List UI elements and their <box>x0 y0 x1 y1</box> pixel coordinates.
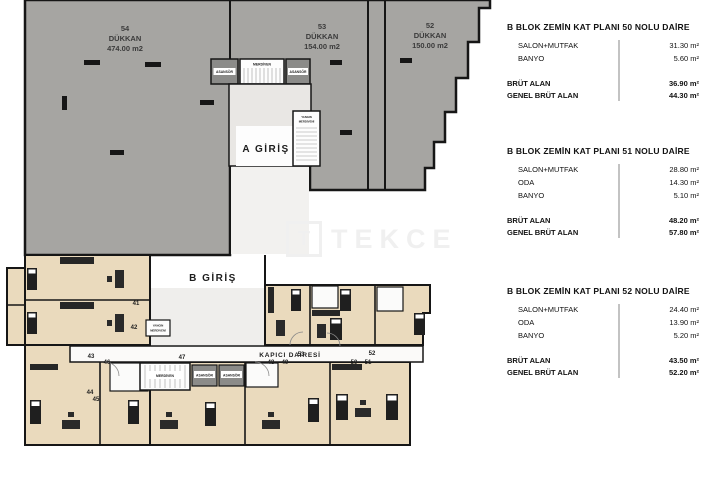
total-row: BRÜT ALAN 48.20 m² <box>507 215 699 227</box>
svg-text:A GİRİŞ: A GİRİŞ <box>242 142 289 155</box>
area-row: SALON+MUTFAK 28.80 m² <box>507 163 699 176</box>
svg-text:ASANSÖR: ASANSÖR <box>223 372 241 377</box>
svg-text:42: 42 <box>131 325 138 331</box>
svg-text:47: 47 <box>179 355 186 361</box>
block-title: B BLOK ZEMİN KAT PLANI 50 NOLU DAİRE <box>507 22 699 32</box>
area-row: ODA 13.90 m² <box>507 316 699 329</box>
svg-text:MERDİVENİ: MERDİVENİ <box>150 328 166 333</box>
svg-text:43: 43 <box>88 354 95 360</box>
svg-text:53: 53 <box>318 22 326 31</box>
kapici-label: KAPICI DAİRESİ <box>259 351 320 359</box>
total-row: BRÜT ALAN 43.50 m² <box>507 355 699 367</box>
fire-escape-top: YANGIN MERDİVENİ <box>293 111 320 166</box>
svg-text:ASANSÖR: ASANSÖR <box>196 372 214 377</box>
total-row: GENEL BRÜT ALAN 44.30 m² <box>507 90 699 102</box>
courtyard-shade <box>231 167 309 254</box>
svg-text:53: 53 <box>298 352 305 358</box>
fire-escape-hall: YANGIN MERDİVENİ <box>146 320 170 336</box>
svg-text:DÜKKAN: DÜKKAN <box>306 32 339 41</box>
floorplan-screenshot: 54 DÜKKAN 474.00 m2 53 DÜKKAN 154.00 m2 … <box>0 0 726 485</box>
svg-text:B GİRİŞ: B GİRİŞ <box>189 271 237 284</box>
elevator-top-right: ASANSÖR <box>286 59 310 84</box>
apartment-50-block: B BLOK ZEMİN KAT PLANI 50 NOLU DAİRE SAL… <box>507 22 699 102</box>
floorplan-drawing: 54 DÜKKAN 474.00 m2 53 DÜKKAN 154.00 m2 … <box>0 0 497 485</box>
stairs-bottom: MERDİVEN <box>140 363 190 390</box>
area-row: ODA 14.30 m² <box>507 176 699 189</box>
svg-text:474.00 m2: 474.00 m2 <box>107 44 143 53</box>
apartment-52-block: B BLOK ZEMİN KAT PLANI 52 NOLU DAİRE SAL… <box>507 286 699 379</box>
block-title: B BLOK ZEMİN KAT PLANI 52 NOLU DAİRE <box>507 286 699 296</box>
block-title: B BLOK ZEMİN KAT PLANI 51 NOLU DAİRE <box>507 146 699 156</box>
area-row: BANYO 5.10 m² <box>507 189 699 202</box>
svg-text:MERDİVENİ: MERDİVENİ <box>299 119 315 124</box>
apartment-51-block: B BLOK ZEMİN KAT PLANI 51 NOLU DAİRE SAL… <box>507 146 699 239</box>
svg-text:45: 45 <box>93 397 100 403</box>
svg-text:52: 52 <box>369 351 376 357</box>
area-row: SALON+MUTFAK 31.30 m² <box>507 39 699 52</box>
total-row: BRÜT ALAN 36.90 m² <box>507 78 699 90</box>
svg-text:MERDİVEN: MERDİVEN <box>156 374 174 378</box>
svg-text:41: 41 <box>133 301 140 307</box>
svg-text:48: 48 <box>268 360 275 366</box>
svg-text:51: 51 <box>365 360 372 366</box>
svg-text:YANGIN: YANGIN <box>153 324 164 328</box>
svg-text:44: 44 <box>87 390 94 396</box>
area-row: BANYO 5.60 m² <box>507 52 699 65</box>
svg-text:150.00 m2: 150.00 m2 <box>412 41 448 50</box>
svg-text:52: 52 <box>426 21 434 30</box>
divider-line <box>618 40 620 101</box>
stairs-top: MERDİVEN <box>240 59 284 84</box>
total-row: GENEL BRÜT ALAN 52.20 m² <box>507 367 699 379</box>
svg-text:154.00 m2: 154.00 m2 <box>304 42 340 51</box>
svg-text:49: 49 <box>282 360 289 366</box>
svg-text:YANGIN: YANGIN <box>301 115 312 119</box>
divider-line <box>618 304 620 378</box>
svg-text:54: 54 <box>121 24 130 33</box>
svg-text:MERDİVEN: MERDİVEN <box>253 63 271 67</box>
svg-text:50: 50 <box>351 360 358 366</box>
area-row: BANYO 5.20 m² <box>507 329 699 342</box>
divider-line <box>618 164 620 238</box>
elevator-bottom-left: ASANSÖR <box>192 365 217 386</box>
svg-text:46: 46 <box>104 360 111 366</box>
svg-text:ASANSÖR: ASANSÖR <box>290 69 308 74</box>
elevator-bottom-right: ASANSÖR <box>219 365 244 386</box>
total-row: GENEL BRÜT ALAN 57.80 m² <box>507 227 699 239</box>
svg-text:ASANSÖR: ASANSÖR <box>216 69 234 74</box>
area-row: SALON+MUTFAK 24.40 m² <box>507 303 699 316</box>
svg-text:DÜKKAN: DÜKKAN <box>414 31 447 40</box>
svg-text:DÜKKAN: DÜKKAN <box>109 34 142 43</box>
elevator-top-left: ASANSÖR <box>211 59 238 84</box>
